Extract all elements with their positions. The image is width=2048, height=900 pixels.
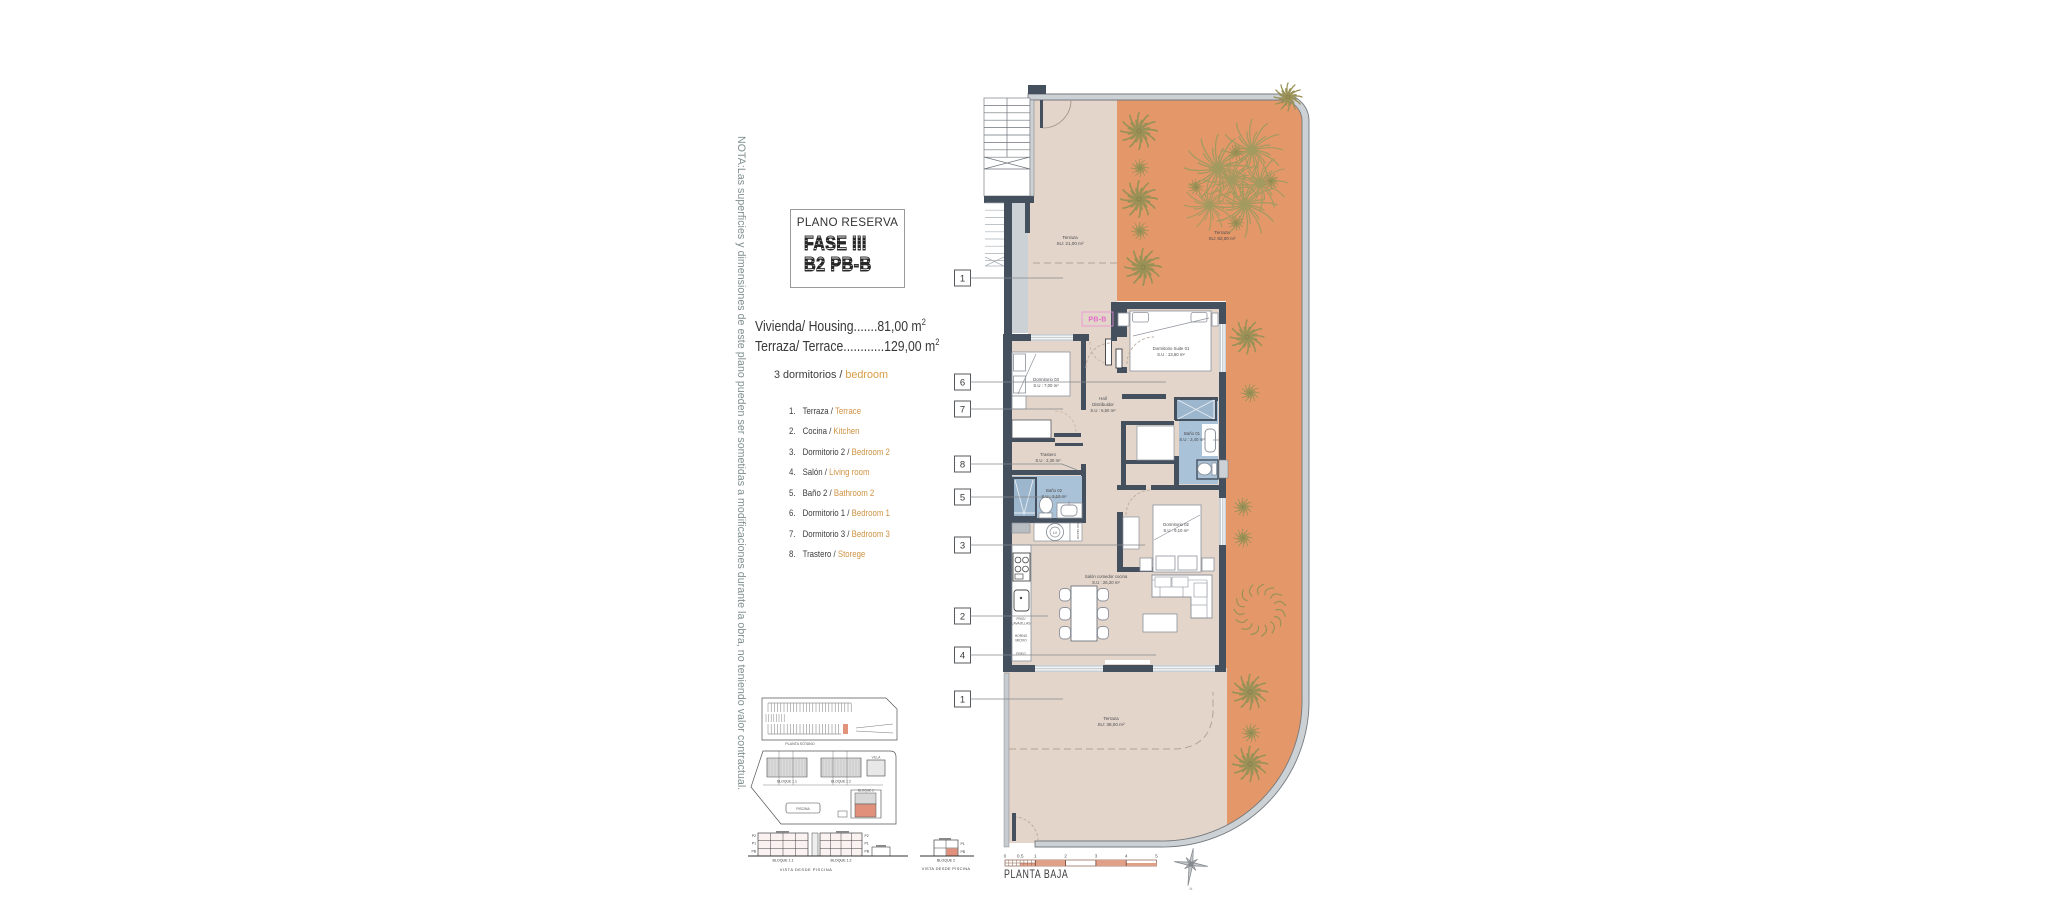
svg-text:VISTA DESDE PISCINA: VISTA DESDE PISCINA [922, 866, 971, 871]
svg-text:S.U : 3,40 m²: S.U : 3,40 m² [1179, 437, 1205, 442]
svg-text:Trastero: Trastero [1040, 452, 1056, 457]
svg-text:BLOQUE 1.2: BLOQUE 1.2 [831, 780, 851, 784]
svg-text:FREG: FREG [1016, 652, 1026, 656]
svg-text:Salón comedor cocina: Salón comedor cocina [1085, 574, 1128, 579]
svg-text:VISTA DESDE PISCINA: VISTA DESDE PISCINA [780, 867, 833, 872]
svg-text:S.U : 3,10 m²: S.U : 3,10 m² [1041, 494, 1067, 499]
svg-text:3: 3 [1095, 854, 1098, 860]
svg-text:FRIG/: FRIG/ [1016, 617, 1025, 621]
svg-text:BLOQUE 2: BLOQUE 2 [858, 789, 874, 793]
svg-text:Distribuidor: Distribuidor [1092, 402, 1114, 407]
svg-text:BLOQUE 1.1: BLOQUE 1.1 [773, 859, 794, 863]
svg-text:P1: P1 [865, 842, 869, 846]
svg-text:PB: PB [751, 850, 756, 854]
svg-text:2: 2 [1064, 854, 1067, 860]
svg-text:LV: LV [1053, 530, 1058, 535]
svg-text:BLOQUE 1.1: BLOQUE 1.1 [777, 780, 797, 784]
svg-text:SU: 21,00 m²: SU: 21,00 m² [1056, 241, 1084, 246]
svg-text:6: 6 [960, 377, 965, 388]
svg-text:Baño 01: Baño 01 [1184, 431, 1201, 436]
svg-text:8: 8 [960, 459, 965, 470]
svg-text:5: 5 [1155, 854, 1158, 860]
svg-text:VILLA: VILLA [872, 756, 882, 760]
svg-text:S.U : 26,20 m²: S.U : 26,20 m² [1092, 580, 1120, 585]
svg-text:HORNO: HORNO [1015, 634, 1028, 638]
svg-text:2: 2 [960, 611, 965, 622]
svg-text:PB-B: PB-B [1088, 317, 1106, 324]
svg-text:BLOQUE 1.2: BLOQUE 1.2 [831, 859, 852, 863]
svg-text:Terraza: Terraza [1103, 716, 1119, 721]
svg-text:PISCINA: PISCINA [796, 807, 810, 811]
svg-text:MICRO: MICRO [1015, 639, 1027, 643]
svg-text:Dormitorio Suite 01: Dormitorio Suite 01 [1153, 346, 1190, 351]
svg-text:Dormitorio 03: Dormitorio 03 [1033, 377, 1059, 382]
svg-text:7: 7 [960, 404, 965, 415]
svg-text:PLANTA SÓTANO: PLANTA SÓTANO [785, 741, 815, 746]
svg-text:P1: P1 [961, 842, 965, 846]
svg-text:P1: P1 [752, 842, 756, 846]
svg-text:Hall: Hall [1099, 396, 1106, 401]
svg-text:4: 4 [1125, 854, 1128, 860]
svg-text:S.U : 13,50 m²: S.U : 13,50 m² [1157, 352, 1185, 357]
svg-text:P2: P2 [865, 834, 869, 838]
svg-text:3: 3 [960, 540, 965, 551]
svg-text:S.U : 6,50 m²: S.U : 6,50 m² [1090, 408, 1116, 413]
svg-text:5: 5 [960, 492, 965, 503]
svg-text:S.U : 9,10 m²: S.U : 9,10 m² [1163, 528, 1189, 533]
svg-text:Terraza: Terraza [1062, 235, 1078, 240]
svg-text:1: 1 [1034, 854, 1037, 860]
svg-text:Baño 02: Baño 02 [1046, 488, 1063, 493]
svg-text:1: 1 [960, 694, 965, 705]
svg-text:PB: PB [961, 850, 966, 854]
svg-text:P2: P2 [752, 834, 756, 838]
svg-text:LAVAJILLAS: LAVAJILLAS [1011, 622, 1031, 626]
svg-text:LAVA SECAD: LAVA SECAD [1076, 521, 1080, 540]
svg-text:S.U : 2,30 m²: S.U : 2,30 m² [1035, 458, 1061, 463]
svg-text:1: 1 [960, 273, 965, 284]
svg-text:Terraza: Terraza [1214, 230, 1230, 235]
svg-text:BLOQUE 2: BLOQUE 2 [937, 859, 955, 863]
svg-text:PB: PB [865, 850, 870, 854]
svg-text:4: 4 [960, 650, 965, 661]
svg-text:N: N [1190, 886, 1193, 891]
svg-text:Dormitorio 02: Dormitorio 02 [1163, 522, 1189, 527]
svg-text:SU: 38,00 m²: SU: 38,00 m² [1097, 722, 1125, 727]
svg-text:0: 0 [1004, 854, 1007, 860]
svg-text:PLANTA BAJA: PLANTA BAJA [1004, 869, 1068, 881]
svg-text:SU: 82,00 m²: SU: 82,00 m² [1208, 236, 1236, 241]
svg-text:S.U : 7,00 m²: S.U : 7,00 m² [1033, 383, 1059, 388]
svg-text:0.5: 0.5 [1017, 854, 1024, 860]
